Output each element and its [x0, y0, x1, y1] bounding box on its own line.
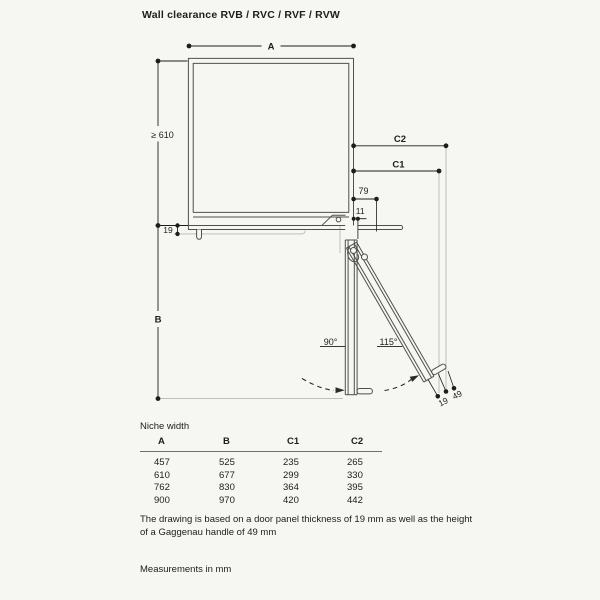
dim-label-b: B	[155, 315, 162, 326]
cell: 677	[205, 470, 269, 483]
niche-walls	[188, 58, 354, 230]
drawing-basis-note: The drawing is based on a door panel thi…	[140, 514, 475, 539]
cell: 970	[205, 495, 269, 508]
cell: 330	[333, 470, 382, 483]
cell: 900	[140, 495, 205, 508]
cell: 299	[269, 470, 333, 483]
manual-page: Wall clearance RVB / RVC / RVF / RVW	[0, 0, 600, 600]
col-header-c2: C2	[333, 436, 382, 447]
table-row: 762 830 364 395	[140, 482, 382, 495]
wall-clearance-diagram: A ≥ 610 B 19 79 11 C2 C1 90° 115° 19 49	[0, 0, 600, 600]
table-body: 457 525 235 265 610 677 299 330 762 830 …	[140, 457, 382, 508]
dimension-labels: A ≥ 610 B 19 79 11 C2 C1 90° 115° 19 49	[151, 41, 464, 408]
cell: 457	[140, 457, 205, 470]
table-row: 457 525 235 265	[140, 457, 382, 470]
door-handle	[357, 389, 372, 394]
niche-width-table: A B C1 C2 457 525 235 265 610 677 299 33…	[140, 436, 382, 508]
cell: 420	[269, 495, 333, 508]
dim-label-19-wall: 19	[163, 225, 173, 235]
dim-label-11: 11	[356, 206, 365, 216]
cell: 235	[269, 457, 333, 470]
appliance-foot	[197, 230, 202, 240]
dim-label-c2: C2	[394, 134, 406, 145]
cell: 395	[333, 482, 382, 495]
extension-lines	[158, 146, 446, 398]
table-header-row: A B C1 C2	[140, 436, 382, 452]
cell: 265	[333, 457, 382, 470]
angle-label-115: 115°	[380, 337, 398, 347]
col-header-a: A	[140, 436, 205, 447]
cell: 762	[140, 482, 205, 495]
appliance-base	[188, 212, 403, 239]
cell: 525	[205, 457, 269, 470]
angle-label-90: 90°	[324, 337, 338, 347]
cell: 364	[269, 482, 333, 495]
dim-label-a: A	[268, 41, 275, 52]
arrowhead	[336, 387, 345, 393]
dim-label-c1: C1	[392, 159, 405, 170]
units-note: Measurements in mm	[140, 564, 231, 575]
dim-label-79: 79	[358, 186, 368, 196]
arrowhead	[410, 375, 419, 382]
dim-label-min-depth: ≥ 610	[151, 130, 173, 140]
cell: 610	[140, 470, 205, 483]
dimension-lines	[156, 46, 455, 399]
dimension-dots	[156, 44, 457, 401]
table-row: 610 677 299 330	[140, 470, 382, 483]
col-header-c1: C1	[269, 436, 333, 447]
col-header-b: B	[205, 436, 269, 447]
table-caption: Niche width	[140, 421, 189, 432]
cell: 442	[333, 495, 382, 508]
cell: 830	[205, 482, 269, 495]
table-row: 900 970 420 442	[140, 495, 382, 508]
